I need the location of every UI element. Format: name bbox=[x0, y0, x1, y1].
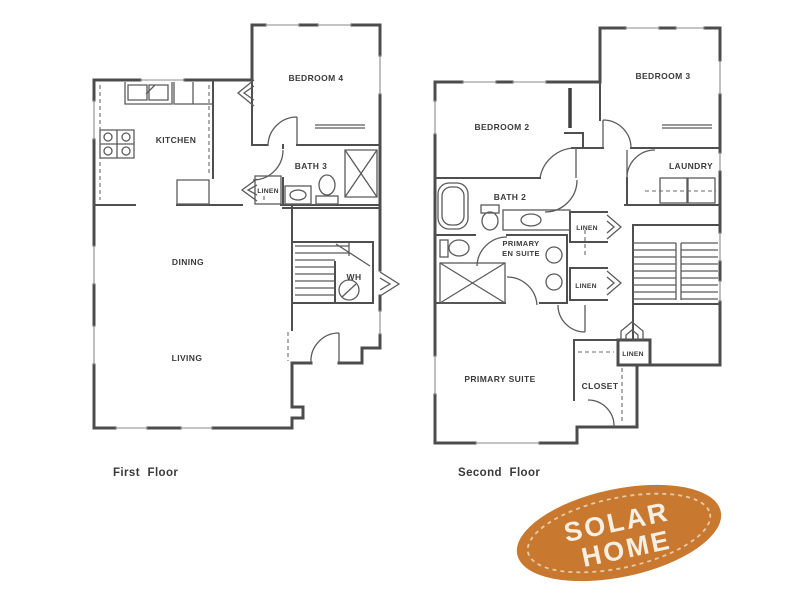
ensuite-hall-door-swing bbox=[507, 277, 537, 305]
linen-lower-door-icon bbox=[607, 271, 621, 295]
sink-vanity-icon-bath3 bbox=[285, 186, 311, 204]
shower-icon bbox=[345, 150, 377, 197]
room-label-bedroom3: BEDROOM 3 bbox=[635, 71, 690, 81]
kitchen-island-counter bbox=[177, 180, 209, 204]
room-label-water-heater: WH bbox=[347, 272, 362, 282]
shower-icon-ensuite bbox=[440, 263, 505, 303]
closet-door-swing bbox=[588, 400, 614, 427]
room-label-linen-first: LINEN bbox=[257, 188, 278, 195]
bathtub-icon bbox=[438, 183, 468, 229]
entry-door-swing bbox=[311, 333, 339, 363]
washer-dryer-icon bbox=[645, 178, 716, 203]
room-label-linen-lower: LINEN bbox=[575, 283, 596, 290]
water-heater-icon bbox=[339, 280, 359, 300]
bedroom2-door-swing bbox=[540, 148, 576, 178]
stairs-second-floor bbox=[633, 243, 718, 300]
front-door-arrow-icon bbox=[380, 272, 399, 296]
laundry-door-swing bbox=[627, 150, 655, 178]
room-label-bath2: BATH 2 bbox=[494, 192, 526, 202]
first-floor-caption: First Floor bbox=[113, 467, 178, 479]
bedroom3-door-swing bbox=[603, 120, 631, 148]
room-label-linen-closet: LINEN bbox=[622, 351, 643, 358]
solar-home-badge: SOLAR HOME bbox=[508, 468, 730, 597]
room-label-ensuite-line1: PRIMARY bbox=[502, 239, 539, 248]
sink-vanity-icon-bath2 bbox=[503, 210, 570, 230]
toilet-icon-bath2 bbox=[481, 205, 499, 230]
room-label-bath3: BATH 3 bbox=[295, 161, 327, 171]
first-floor-interior-walls bbox=[94, 80, 380, 330]
bedroom4-sill-line bbox=[315, 125, 365, 128]
second-floor-plan: BEDROOM 2 BEDROOM 3 BATH 2 LAUNDRY PRIMA… bbox=[435, 28, 720, 479]
room-label-bedroom4: BEDROOM 4 bbox=[288, 73, 343, 83]
bath2-door-swing bbox=[545, 180, 577, 212]
toilet-icon-bath3 bbox=[316, 175, 338, 204]
room-label-bedroom2: BEDROOM 2 bbox=[474, 122, 529, 132]
linen-upper-door-icon bbox=[607, 215, 621, 239]
second-floor-caption: Second Floor bbox=[458, 467, 540, 479]
stove-icon bbox=[100, 130, 134, 158]
room-label-ensuite-line2: EN SUITE bbox=[502, 249, 540, 258]
bedroom3-sill-line bbox=[662, 125, 712, 128]
floor-plan-drawing: BEDROOM 4 KITCHEN BATH 3 LINEN DINING LI… bbox=[0, 0, 800, 600]
first-floor-plan: BEDROOM 4 KITCHEN BATH 3 LINEN DINING LI… bbox=[94, 25, 399, 479]
room-label-primary-suite: PRIMARY SUITE bbox=[464, 374, 535, 384]
primary-suite-door-swing bbox=[558, 305, 585, 332]
room-label-kitchen: KITCHEN bbox=[156, 135, 197, 145]
floor-plan-image: BEDROOM 4 KITCHEN BATH 3 LINEN DINING LI… bbox=[0, 0, 800, 600]
toilet-icon-ensuite bbox=[440, 240, 469, 257]
room-label-closet: CLOSET bbox=[582, 381, 619, 391]
kitchen-counter-sink-icon bbox=[125, 82, 212, 104]
room-label-linen-upper: LINEN bbox=[576, 225, 597, 232]
room-label-dining: DINING bbox=[172, 257, 204, 267]
double-sink-vanity-icon-ensuite bbox=[546, 247, 562, 290]
room-label-living: LIVING bbox=[172, 353, 203, 363]
bedroom4-door-swing bbox=[268, 117, 297, 146]
room-label-laundry: LAUNDRY bbox=[669, 161, 713, 171]
